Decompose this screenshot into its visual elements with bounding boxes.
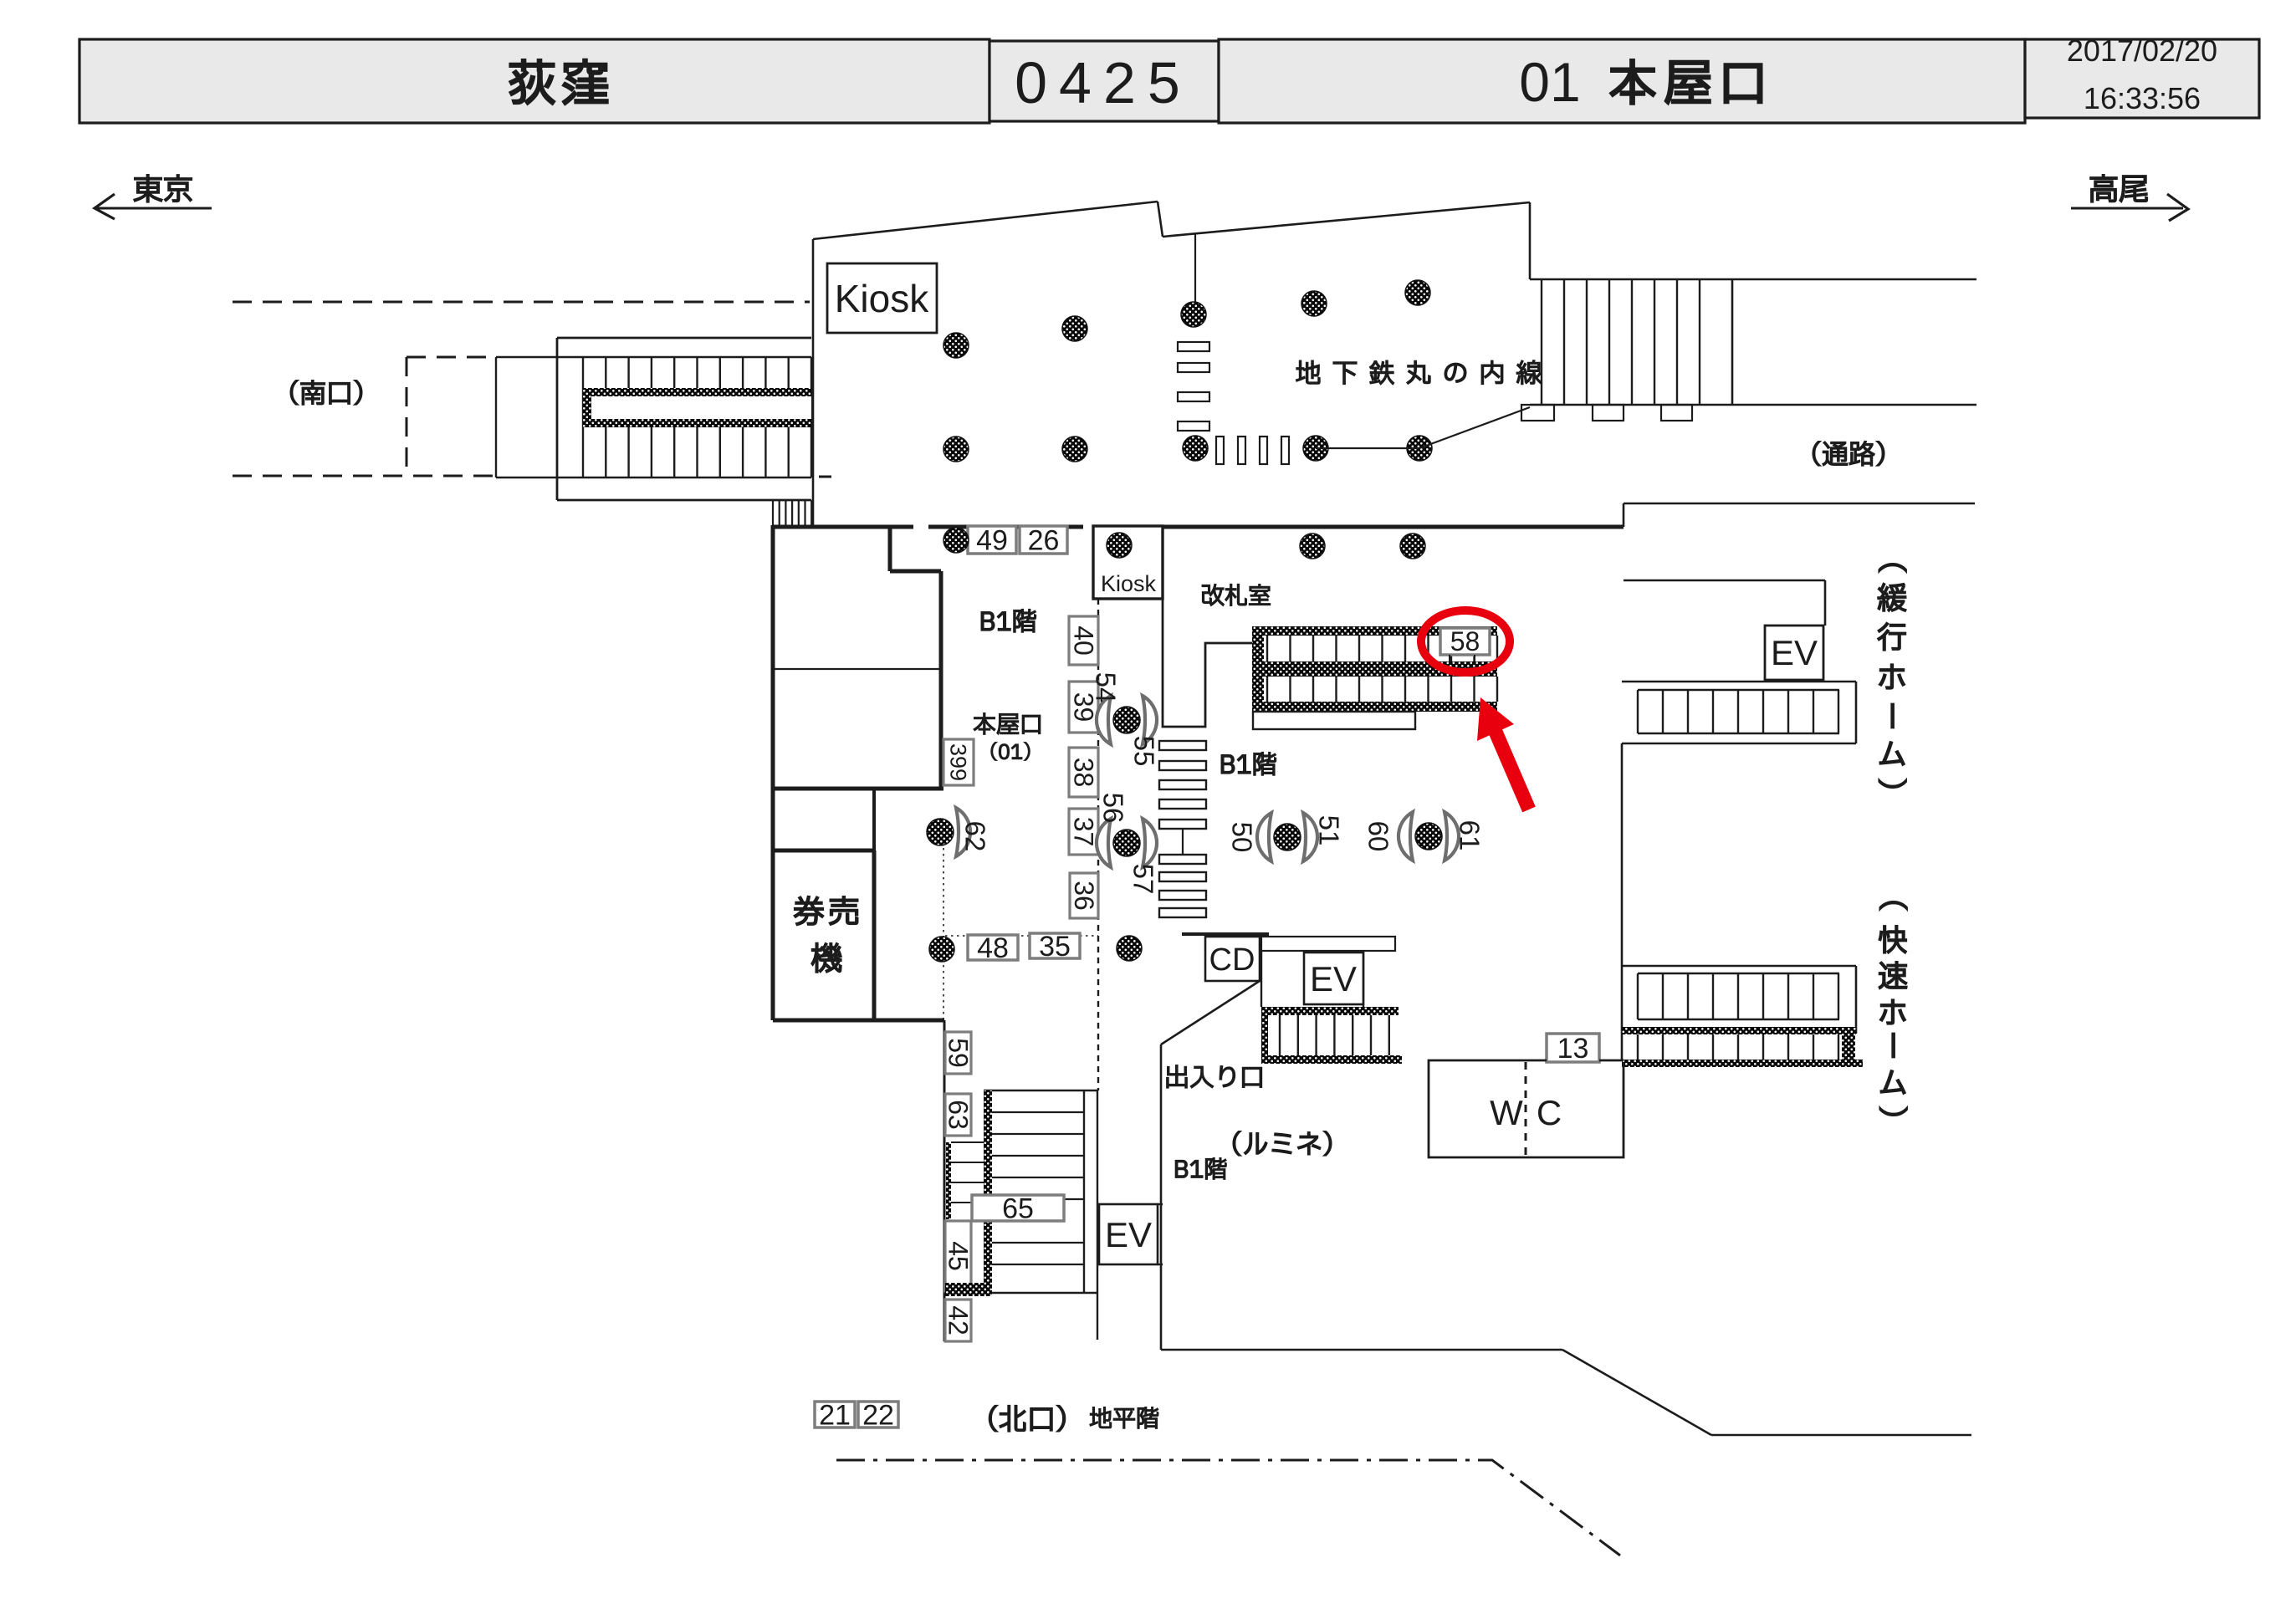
svg-text:38: 38 [1068,758,1098,788]
svg-text:59: 59 [943,1038,973,1068]
svg-text:58: 58 [1450,626,1480,656]
svg-text:45: 45 [943,1241,973,1271]
svg-text:55: 55 [1128,736,1159,767]
svg-text:37: 37 [1068,817,1098,847]
svg-text:40: 40 [1068,626,1098,656]
svg-text:W: W [1490,1093,1523,1132]
svg-text:22: 22 [862,1399,894,1431]
svg-text:61: 61 [1454,820,1485,851]
svg-text:C: C [1537,1093,1562,1132]
svg-text:54: 54 [1090,672,1121,703]
svg-text:35: 35 [1039,931,1071,963]
svg-text:01: 01 [1519,51,1580,113]
svg-text:26: 26 [1028,524,1060,556]
svg-text:62: 62 [959,821,990,852]
svg-text:51: 51 [1313,815,1344,846]
svg-text:50: 50 [1226,822,1257,853]
svg-text:42: 42 [943,1305,973,1335]
svg-text:56: 56 [1097,793,1128,824]
svg-text:63: 63 [943,1100,973,1130]
svg-text:399: 399 [946,743,971,781]
svg-text:57: 57 [1128,864,1158,895]
svg-text:65: 65 [1002,1192,1034,1224]
svg-text:60: 60 [1363,821,1393,852]
svg-text:Kiosk: Kiosk [835,277,929,320]
svg-text:13: 13 [1557,1033,1589,1065]
svg-text:Kiosk: Kiosk [1101,571,1157,596]
svg-text:0425: 0425 [1015,50,1192,115]
svg-text:2017/02/20: 2017/02/20 [2067,33,2217,68]
svg-text:49: 49 [976,524,1008,556]
svg-text:EV: EV [1105,1215,1152,1254]
svg-text:EV: EV [1771,633,1818,672]
svg-text:48: 48 [977,932,1009,964]
svg-text:CD: CD [1209,942,1255,978]
svg-text:36: 36 [1069,881,1099,911]
svg-text:16:33:56: 16:33:56 [2084,81,2201,115]
svg-text:21: 21 [819,1399,851,1431]
svg-text:EV: EV [1310,959,1357,998]
